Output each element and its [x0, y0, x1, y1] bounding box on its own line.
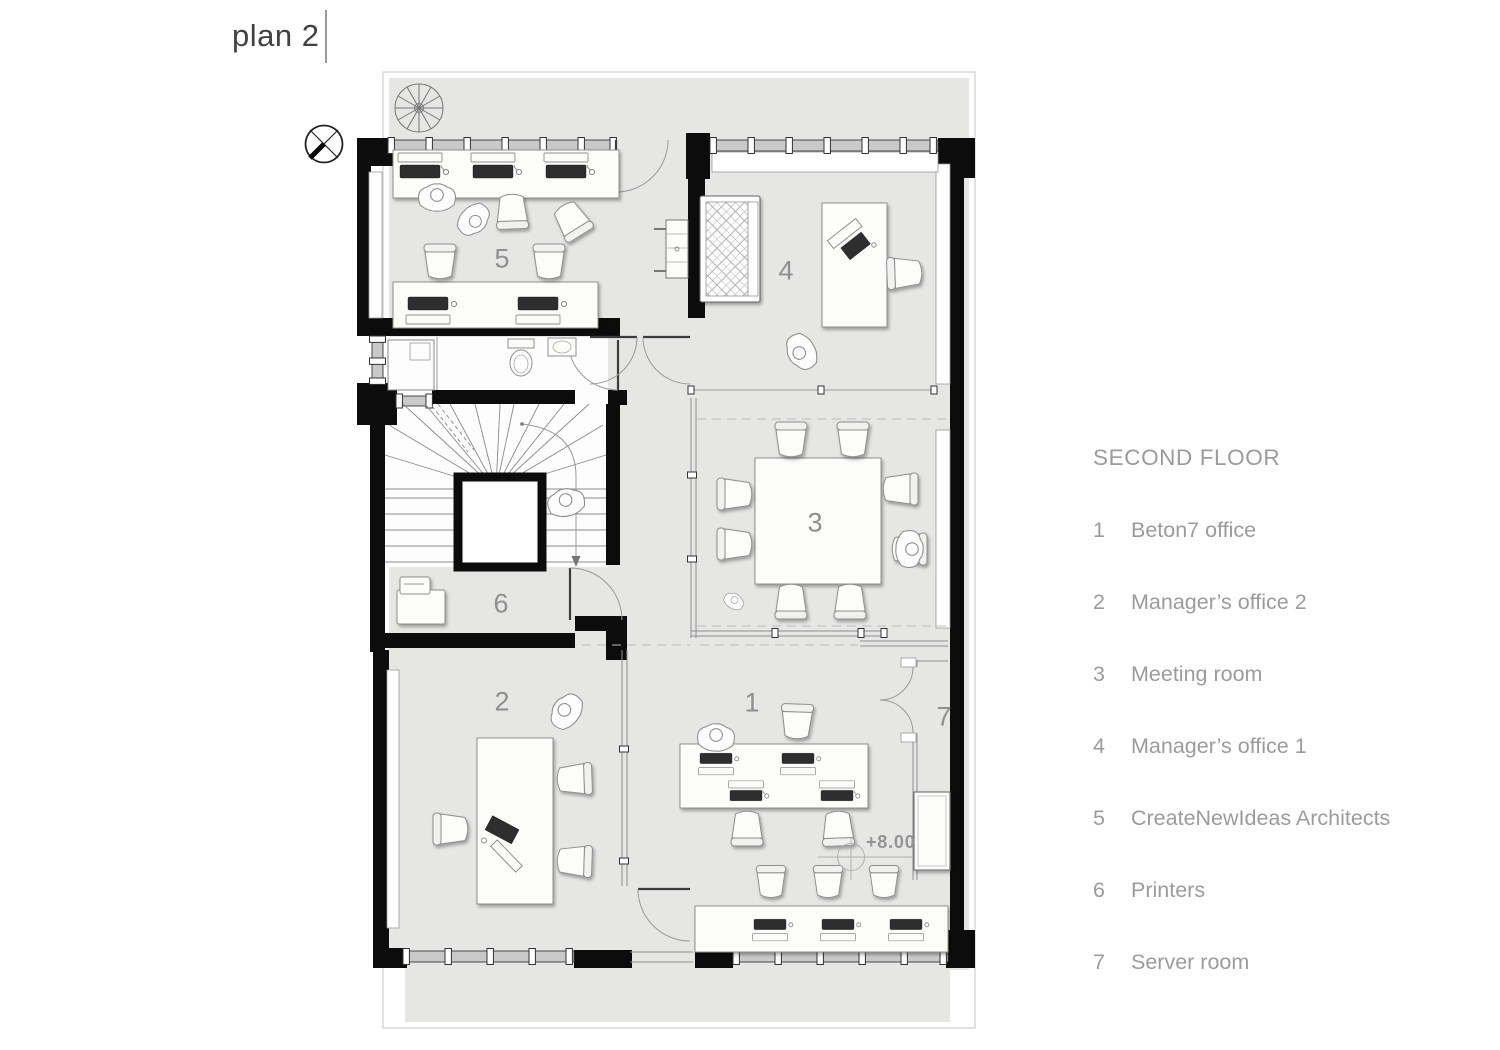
spiral-stair — [395, 84, 443, 132]
legend-item-6: 6 Printers — [1093, 877, 1453, 903]
legend-number: 7 — [1093, 949, 1131, 975]
room-label-2: 2 — [494, 687, 509, 718]
legend-label: Beton7 office — [1131, 517, 1256, 543]
desk — [477, 738, 553, 904]
level-marker-text: +8.00 — [866, 832, 916, 853]
window-left-small — [370, 336, 386, 384]
legend-label: Manager’s office 2 — [1131, 589, 1307, 615]
server-rack — [914, 792, 950, 870]
legend-number: 1 — [1093, 517, 1131, 543]
legend-label: Meeting room — [1131, 661, 1262, 687]
legend-number: 6 — [1093, 877, 1131, 903]
legend-item-5: 5 CreateNewIdeas Architects — [1093, 805, 1453, 831]
title-separator — [325, 10, 327, 63]
legend-number: 5 — [1093, 805, 1131, 831]
window-band-room4-top — [710, 138, 938, 154]
sofa — [700, 196, 760, 302]
toilet — [508, 339, 534, 376]
floor-plan-page: plan 2 5 4 3 6 2 1 7 +8.00 SECOND FLOOR … — [0, 0, 1500, 1050]
legend-label: CreateNewIdeas Architects — [1131, 805, 1390, 831]
room-label-6: 6 — [493, 589, 508, 620]
room-label-5: 5 — [494, 244, 509, 275]
page-title: plan 2 — [232, 18, 319, 54]
legend-label: Server room — [1131, 949, 1249, 975]
legend-heading: SECOND FLOOR — [1093, 444, 1453, 471]
legend-item-7: 7 Server room — [1093, 949, 1453, 975]
legend-item-2: 2 Manager’s office 2 — [1093, 589, 1453, 615]
closet — [388, 340, 434, 390]
room-label-4: 4 — [778, 256, 793, 287]
legend-number: 4 — [1093, 733, 1131, 759]
window-band-room2-bottom — [403, 949, 574, 965]
legend-item-3: 3 Meeting room — [1093, 661, 1453, 687]
room-label-1: 1 — [744, 688, 759, 719]
legend-item-4: 4 Manager’s office 1 — [1093, 733, 1453, 759]
legend-item-1: 1 Beton7 office — [1093, 517, 1453, 543]
legend-label: Printers — [1131, 877, 1205, 903]
legend-number: 3 — [1093, 661, 1131, 687]
north-arrow-icon — [306, 126, 343, 163]
room-label-7: 7 — [936, 702, 951, 733]
legend-label: Manager’s office 1 — [1131, 733, 1307, 759]
sink — [548, 338, 576, 356]
stair-core — [458, 477, 542, 567]
legend: SECOND FLOOR 1 Beton7 office 2 Manager’s… — [1093, 444, 1453, 975]
legend-number: 2 — [1093, 589, 1131, 615]
room-label-3: 3 — [807, 508, 822, 539]
